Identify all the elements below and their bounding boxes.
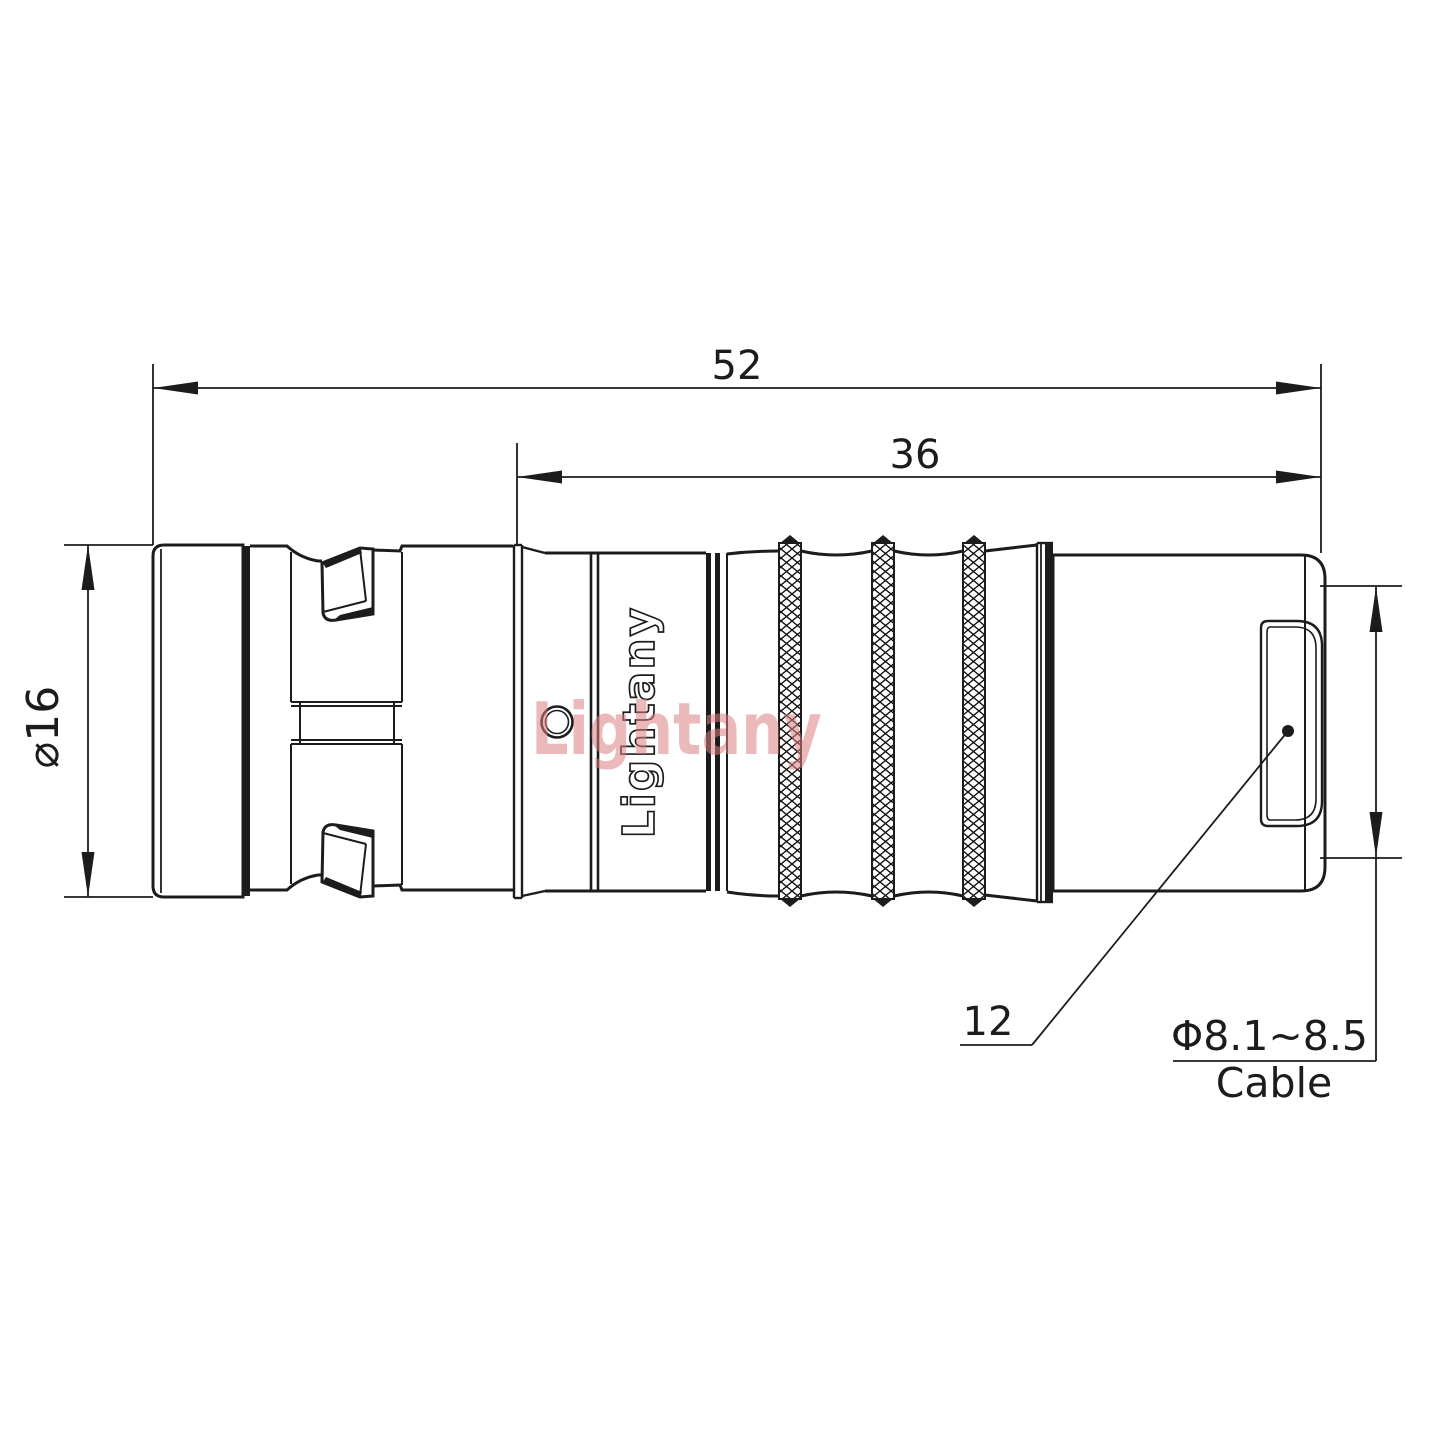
cable-boot: [1053, 555, 1325, 891]
arrowhead-down-icon: [1370, 812, 1383, 857]
dim-label-cable-word: Cable: [1216, 1059, 1332, 1107]
arrowhead-down-icon: [82, 852, 95, 897]
knurl-band: [872, 535, 894, 907]
dim-label-diameter: ⌀16: [18, 686, 69, 768]
dim-label-cable-range: Φ8.1~8.5: [1171, 1012, 1368, 1060]
dim-label-rear-length: 36: [890, 432, 941, 478]
knurl-section: [727, 535, 1037, 907]
dim-diameter: [64, 545, 153, 897]
arrowhead-left-icon: [517, 471, 562, 484]
cable-entry-window: [1261, 621, 1322, 826]
leader-boot-ref: [960, 725, 1294, 1045]
arrowhead-left-icon: [153, 382, 198, 395]
engraved-brand: Lightany: [614, 606, 665, 839]
dim-label-overall-length: 52: [712, 343, 763, 389]
dim-overall-length: [153, 364, 1321, 553]
arrowhead-right-icon: [1276, 382, 1321, 395]
groove-band: [715, 553, 720, 891]
nut-gap-band: [243, 546, 250, 896]
arrowhead-up-icon: [1370, 587, 1383, 632]
vent-hole-inner: [546, 711, 569, 734]
groove-band: [706, 553, 711, 891]
slot-center-window: [291, 702, 402, 744]
bayonet-key-bottom: [322, 825, 373, 898]
drawing-canvas: 52 36 ⌀16: [0, 0, 1440, 1440]
dim-cable-diameter: [1173, 586, 1402, 1061]
arrowhead-up-icon: [82, 545, 95, 590]
bayonet-key-top: [322, 547, 373, 620]
arrowhead-right-icon: [1276, 471, 1321, 484]
coupling-nut: [153, 545, 250, 897]
connector-technical-drawing: 52 36 ⌀16: [0, 0, 1440, 1440]
knurl-band: [779, 535, 801, 907]
bayonet-slot-section: [250, 546, 513, 898]
rear-flange: [1037, 543, 1053, 902]
dim-label-boot-ref: 12: [963, 999, 1014, 1045]
knurl-band: [963, 535, 985, 907]
